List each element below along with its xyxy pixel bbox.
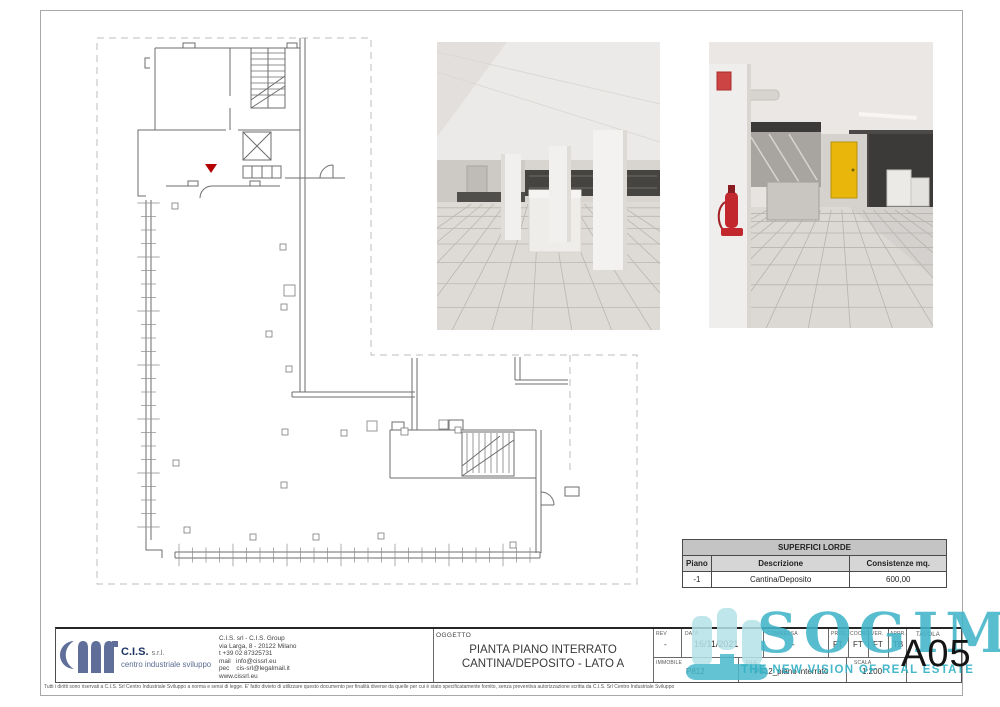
cis-logo-icon bbox=[60, 637, 118, 673]
cis-name-main: C.I.S. bbox=[121, 646, 149, 658]
plan-ticked-wall-bottom bbox=[179, 544, 530, 567]
plan-door-arc bbox=[200, 186, 212, 198]
photo-interior-2 bbox=[709, 42, 933, 328]
rev-value: - bbox=[664, 640, 667, 649]
plan-entrance-marker-icon bbox=[205, 164, 217, 173]
divider bbox=[681, 629, 682, 657]
superfici-table: SUPERFICI LORDE Piano Descrizione Consis… bbox=[682, 539, 947, 588]
col-descrizione: Descrizione bbox=[711, 556, 850, 572]
cell-piano: -1 bbox=[683, 572, 712, 588]
col-piano: Piano bbox=[683, 556, 712, 572]
oggetto-label: OGGETTO bbox=[436, 632, 471, 639]
immobile-label: IMMOBILE bbox=[656, 660, 682, 666]
plan-stair-treads-bottom bbox=[467, 433, 509, 473]
drawing-title: PIANTA PIANO INTERRATO CANTINA/DEPOSITO … bbox=[433, 643, 653, 671]
tavola-number: A05 bbox=[901, 633, 972, 676]
table-title: SUPERFICI LORDE bbox=[683, 540, 947, 556]
drawing-title-line1: PIANTA PIANO INTERRATO bbox=[433, 643, 653, 657]
rev-label: REV bbox=[656, 631, 667, 637]
col-consistenze: Consistenze mq. bbox=[850, 556, 947, 572]
plan-ticked-wall-left bbox=[137, 203, 160, 527]
cis-subtitle: centro industriale sviluppo bbox=[121, 660, 211, 669]
plan-door-arc bbox=[541, 492, 554, 505]
divider bbox=[653, 629, 654, 682]
drawing-sheet: SUPERFICI LORDE Piano Descrizione Consis… bbox=[0, 0, 1000, 707]
photo2-machinery bbox=[745, 132, 821, 187]
photo2-pallets bbox=[887, 170, 911, 206]
cell-consistenze: 600,00 bbox=[850, 572, 947, 588]
plan-elevator-shaft bbox=[243, 132, 271, 160]
drawing-title-line2: CANTINA/DEPOSITO - LATO A bbox=[433, 657, 653, 671]
plan-staircase-top bbox=[251, 48, 285, 108]
cell-descrizione: Cantina/Deposito bbox=[711, 572, 850, 588]
company-info: C.I.S. srl - C.I.S. Group via Larga, 8 -… bbox=[219, 635, 296, 681]
disclaimer-text: Tutti i diritti sono riservati a C.I.S. … bbox=[44, 684, 959, 690]
cis-name: C.I.S. s.r.l. bbox=[121, 646, 164, 658]
table-header-row: Piano Descrizione Consistenze mq. bbox=[683, 556, 947, 572]
photo2-sign bbox=[717, 72, 731, 90]
table-row: -1 Cantina/Deposito 600,00 bbox=[683, 572, 947, 588]
photo-interior-1 bbox=[437, 42, 660, 330]
plan-door-arc bbox=[320, 165, 333, 178]
cis-name-suffix: s.r.l. bbox=[152, 650, 165, 657]
photo2-cart bbox=[767, 182, 819, 220]
